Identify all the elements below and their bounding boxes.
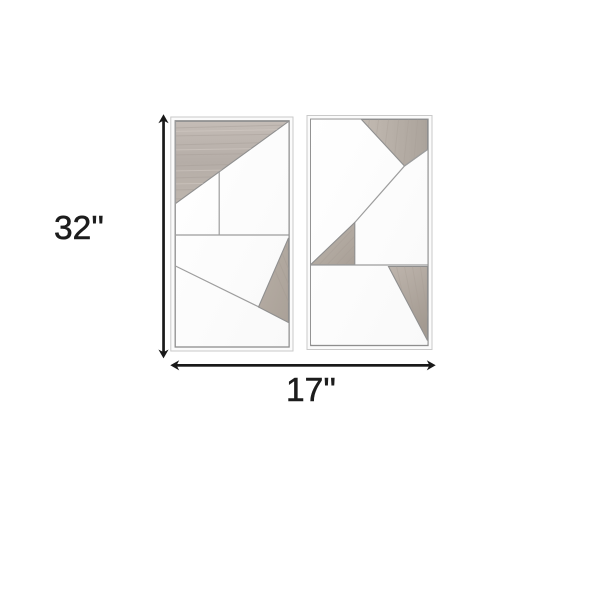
svg-text:32'': 32'': [54, 210, 104, 247]
svg-text:17'': 17'': [286, 372, 336, 409]
